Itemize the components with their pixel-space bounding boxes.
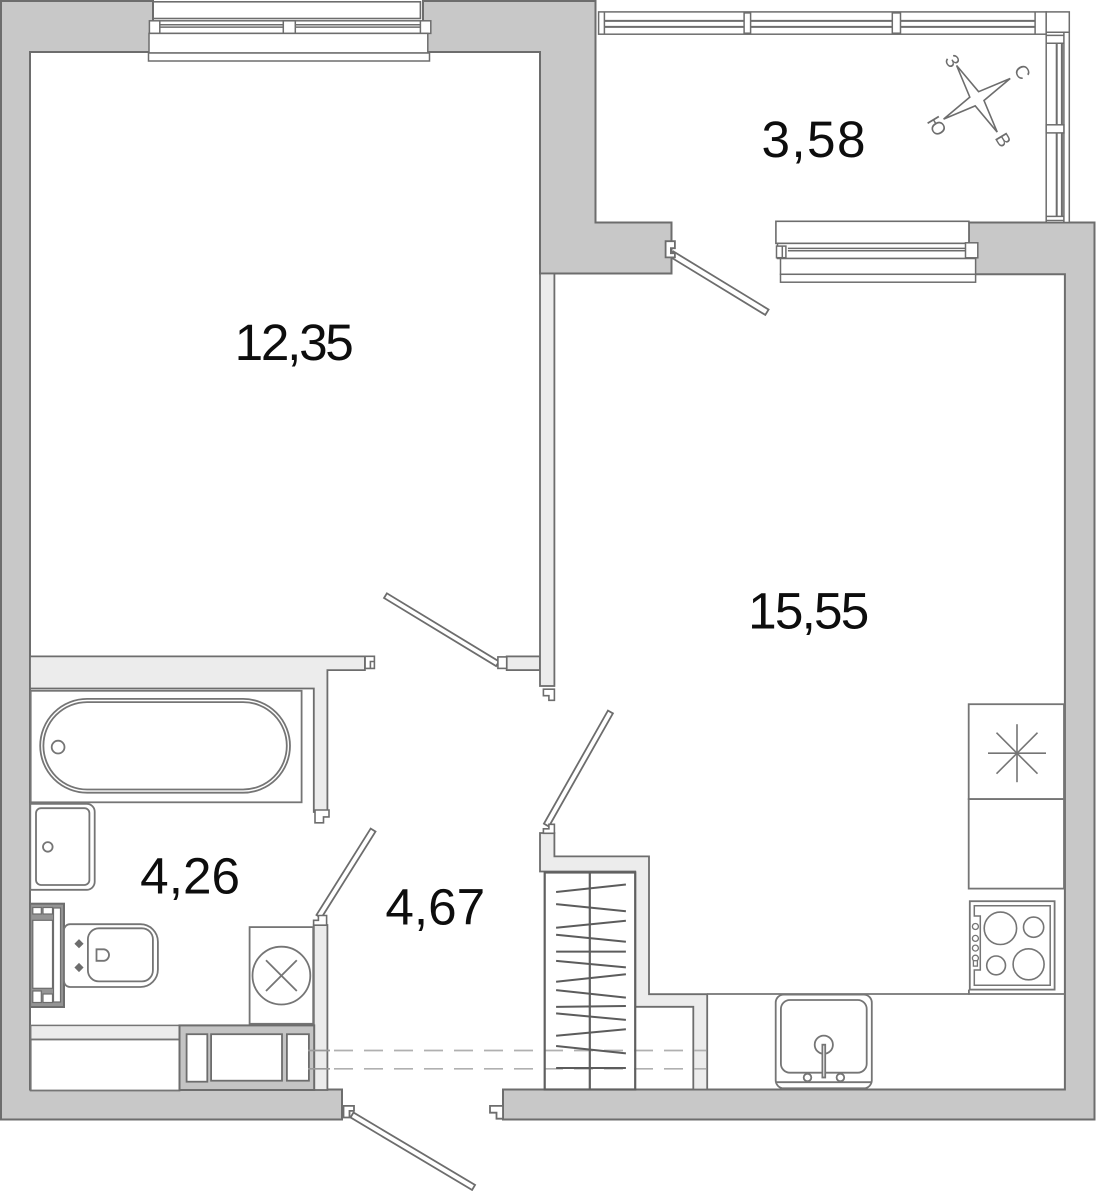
svg-text:3,58: 3,58 xyxy=(761,111,866,168)
svg-text:4,26: 4,26 xyxy=(140,848,240,905)
svg-text:15,55: 15,55 xyxy=(748,583,868,640)
svg-text:12,35: 12,35 xyxy=(235,314,353,371)
svg-text:4,67: 4,67 xyxy=(385,879,485,936)
